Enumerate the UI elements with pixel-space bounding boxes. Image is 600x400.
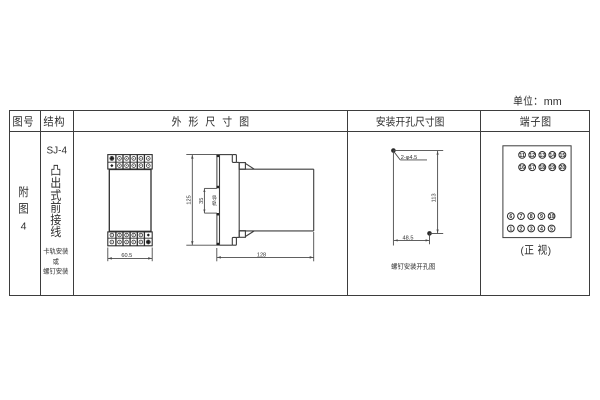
svg-text:5: 5: [550, 226, 553, 232]
svg-text:9: 9: [540, 214, 543, 220]
svg-text:17: 17: [529, 165, 535, 171]
svg-text:14: 14: [549, 153, 555, 159]
svg-text:19: 19: [549, 165, 555, 171]
svg-text:6: 6: [509, 214, 512, 220]
svg-text:1: 1: [509, 226, 512, 232]
svg-text:60.5: 60.5: [121, 253, 132, 259]
svg-text:): ): [548, 246, 551, 257]
svg-text:4: 4: [21, 220, 27, 232]
svg-text:8: 8: [530, 214, 533, 220]
svg-text:SJ-4: SJ-4: [47, 146, 68, 157]
svg-text:125: 125: [187, 195, 193, 204]
svg-text:7: 7: [520, 214, 523, 220]
svg-text:18: 18: [539, 165, 545, 171]
svg-text:mm: mm: [544, 96, 562, 108]
svg-text:2: 2: [520, 226, 523, 232]
svg-text:12: 12: [529, 153, 535, 159]
svg-text:2-φ4.5: 2-φ4.5: [401, 155, 417, 161]
svg-text:48.5: 48.5: [403, 236, 414, 242]
svg-text:13: 13: [539, 153, 545, 159]
svg-text:10: 10: [549, 214, 555, 220]
svg-text:113: 113: [431, 193, 437, 202]
svg-text:16: 16: [519, 165, 525, 171]
svg-text:35: 35: [199, 198, 205, 204]
svg-text:20: 20: [560, 165, 566, 171]
svg-text:128: 128: [257, 252, 266, 258]
svg-text:15: 15: [560, 153, 566, 159]
svg-text:11: 11: [519, 153, 525, 159]
svg-text:4: 4: [540, 226, 543, 232]
svg-text:3: 3: [530, 226, 533, 232]
